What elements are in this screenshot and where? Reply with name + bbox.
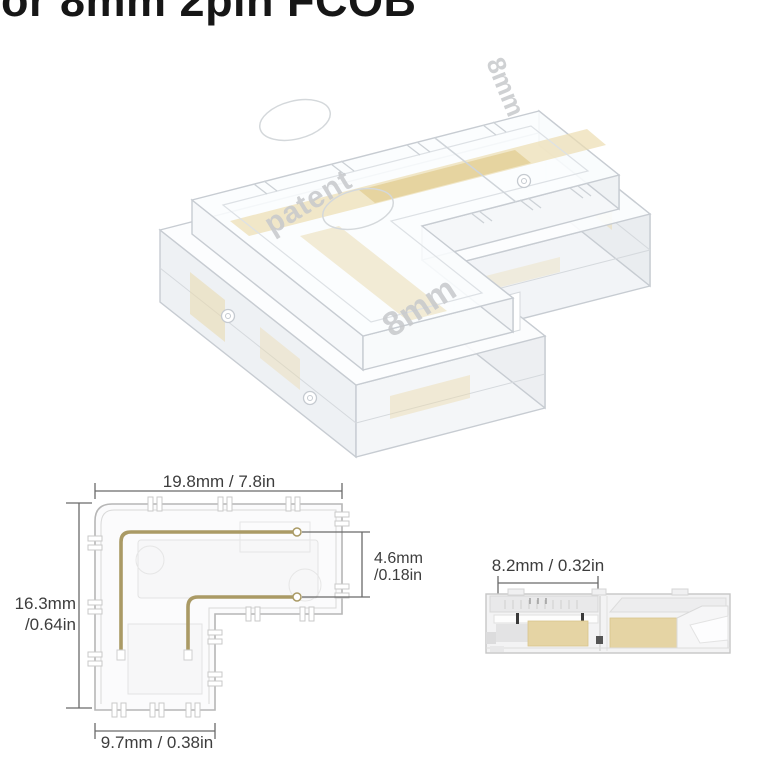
dim-pin-gap-label-line1: 4.6mm bbox=[374, 550, 423, 567]
cob-strip-block-left bbox=[528, 621, 588, 646]
cob-strip-block-right bbox=[610, 618, 677, 648]
product-photo-connector: patent 8mm 8mm bbox=[160, 53, 650, 457]
dim-height-label-line1: 16.3mm bbox=[15, 594, 76, 613]
dim-pin-gap-label-line2: /0.18in bbox=[374, 567, 422, 584]
dim-arm-label: 9.7mm / 0.38in bbox=[101, 733, 213, 752]
dim-height: 16.3mm /0.64in bbox=[15, 503, 92, 708]
dim-arm-width: 9.7mm / 0.38in bbox=[95, 723, 215, 752]
top-view-dimension-diagram: 19.8mm / 7.8in 16.3mm /0.64in 9.7mm / 0.… bbox=[15, 472, 423, 752]
dim-height-label-line2: /0.64in bbox=[25, 615, 76, 634]
side-view-dimension-diagram: 8.2mm / 0.32in bbox=[486, 556, 730, 653]
embossed-8mm-top-text: 8mm bbox=[480, 53, 531, 121]
dim-width-label: 19.8mm / 7.8in bbox=[163, 472, 275, 491]
dim-clamp-label: 8.2mm / 0.32in bbox=[492, 556, 604, 575]
product-figure: patent 8mm 8mm bbox=[0, 0, 770, 770]
dim-width: 19.8mm / 7.8in bbox=[95, 472, 342, 499]
